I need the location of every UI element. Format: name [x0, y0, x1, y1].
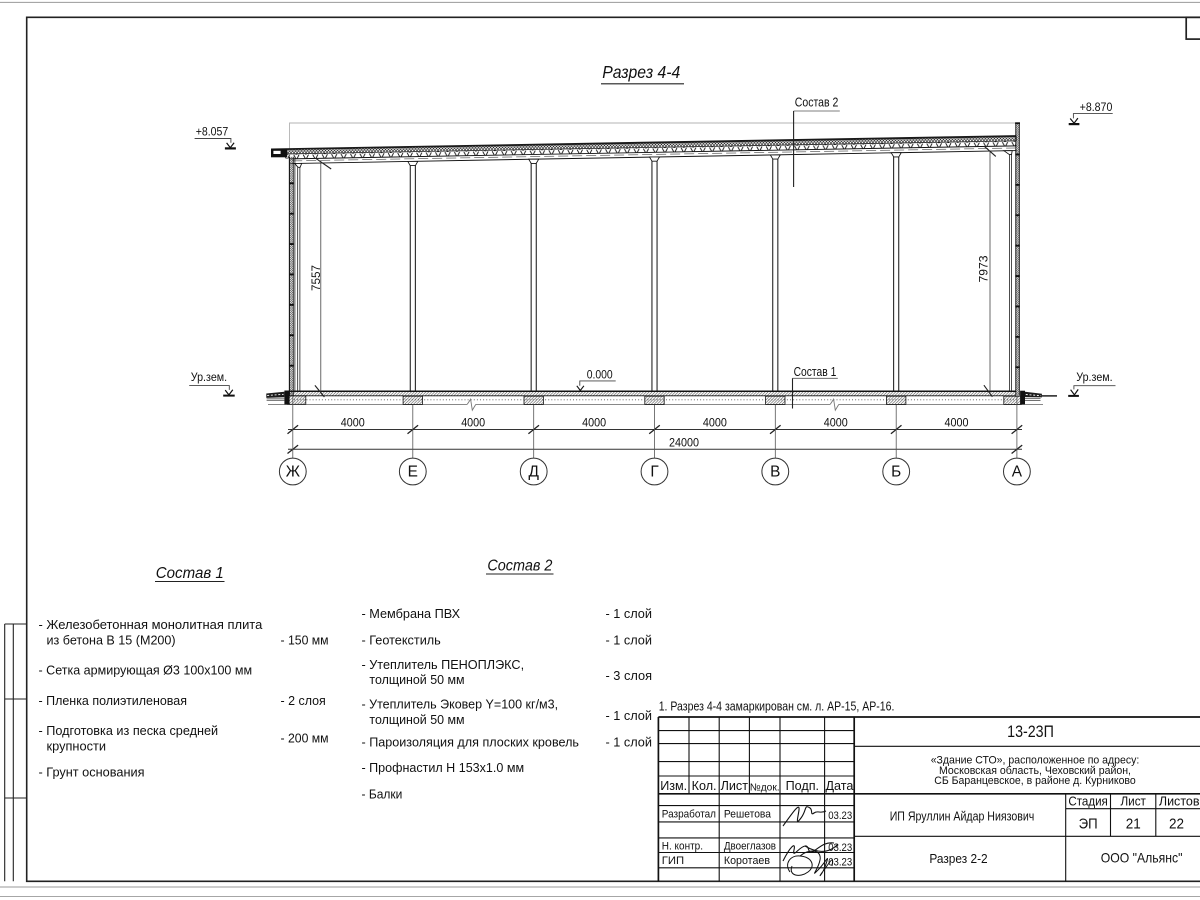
svg-text:Лист: Лист	[721, 779, 749, 793]
svg-text:- Мембрана ПВХ: - Мембрана ПВХ	[362, 606, 461, 621]
svg-text:Коротаев: Коротаев	[724, 855, 770, 867]
svg-text:4000: 4000	[945, 416, 969, 430]
svg-text:- 150 мм: - 150 мм	[281, 632, 329, 647]
svg-text:В: В	[770, 464, 780, 481]
svg-text:из бетона В 15 (М200): из бетона В 15 (М200)	[47, 632, 176, 647]
svg-text:Состав 2: Состав 2	[795, 95, 839, 110]
svg-text:03.23: 03.23	[828, 856, 852, 868]
svg-text:Разработал: Разработал	[662, 808, 716, 820]
svg-text:- 1 слой: - 1 слой	[606, 708, 653, 723]
svg-text:Двоеглазов: Двоеглазов	[724, 841, 776, 853]
svg-text:- Утеплитель Эковер Y=100 кг/м: - Утеплитель Эковер Y=100 кг/м3,	[362, 697, 559, 712]
svg-text:Разрез 2-2: Разрез 2-2	[929, 852, 987, 866]
svg-text:03.23: 03.23	[828, 810, 852, 822]
svg-text:- 1 слой: - 1 слой	[606, 735, 653, 750]
svg-text:Дата: Дата	[825, 779, 853, 793]
svg-text:ЭП: ЭП	[1079, 817, 1098, 833]
svg-text:- Утеплитель ПЕНОПЛЭКС,: - Утеплитель ПЕНОПЛЭКС,	[362, 657, 525, 672]
svg-text:21: 21	[1126, 817, 1141, 833]
svg-text:Ур.зем.: Ур.зем.	[1076, 372, 1112, 384]
svg-text:Н. контр.: Н. контр.	[662, 841, 703, 853]
svg-text:Е: Е	[408, 464, 418, 481]
svg-text:- Балки: - Балки	[362, 787, 403, 802]
svg-text:- 3 слоя: - 3 слоя	[606, 668, 653, 683]
svg-text:Лист: Лист	[1120, 794, 1146, 808]
svg-text:4000: 4000	[341, 416, 365, 430]
svg-text:Состав 1: Состав 1	[156, 565, 224, 582]
svg-text:Разрез 4-4: Разрез 4-4	[602, 62, 680, 82]
svg-text:Кол.: Кол.	[692, 779, 717, 793]
svg-text:- Подготовка из песка средней: - Подготовка из песка средней	[39, 723, 219, 738]
svg-text:Состав 1: Состав 1	[794, 364, 837, 379]
svg-text:- Пароизоляция для плоских кро: - Пароизоляция для плоских кровель	[362, 735, 580, 750]
svg-text:крупности: крупности	[47, 738, 107, 753]
svg-text:Листов: Листов	[1159, 794, 1200, 808]
svg-text:13-23П: 13-23П	[1007, 723, 1054, 741]
svg-text:7973: 7973	[976, 255, 990, 282]
svg-text:- Геотекстиль: - Геотекстиль	[362, 632, 441, 647]
svg-text:+8.870: +8.870	[1080, 102, 1113, 114]
svg-text:+8.057: +8.057	[196, 127, 229, 139]
svg-text:толщиной 50 мм: толщиной 50 мм	[369, 712, 464, 727]
svg-text:толщиной 50 мм: толщиной 50 мм	[369, 672, 464, 687]
svg-text:Стадия: Стадия	[1068, 794, 1108, 808]
svg-text:Г: Г	[650, 464, 659, 481]
svg-text:Б: Б	[891, 464, 901, 481]
svg-text:- Пленка полиэтиленовая: - Пленка полиэтиленовая	[39, 693, 188, 708]
svg-text:- Железобетонная монолитная п: - Железобетонная монолитная плита	[39, 617, 263, 632]
svg-text:ИП Яруллин Айдар Ниязович: ИП Яруллин Айдар Ниязович	[890, 809, 1035, 823]
svg-text:4000: 4000	[703, 416, 727, 430]
svg-text:- 2 слоя: - 2 слоя	[281, 693, 326, 708]
svg-text:ООО "Альянс": ООО "Альянс"	[1101, 851, 1183, 866]
svg-text:- Профнастил Н 153х1.0 мм: - Профнастил Н 153х1.0 мм	[362, 760, 525, 775]
svg-text:А: А	[1012, 464, 1023, 481]
svg-text:Подп.: Подп.	[786, 779, 819, 793]
svg-text:Изм.: Изм.	[660, 779, 687, 793]
svg-text:Ж: Ж	[286, 464, 300, 481]
svg-text:№док.: №док.	[750, 783, 780, 794]
svg-text:ГИП: ГИП	[662, 855, 684, 867]
svg-text:- 200 мм: - 200 мм	[281, 731, 329, 746]
svg-text:- Грунт основания: - Грунт основания	[39, 765, 145, 780]
svg-text:- 1 слой: - 1 слой	[606, 606, 653, 621]
svg-text:4000: 4000	[582, 416, 606, 430]
svg-text:7557: 7557	[309, 265, 323, 291]
svg-text:- 1 слой: - 1 слой	[606, 632, 653, 647]
svg-text:Д: Д	[528, 464, 539, 481]
svg-text:4000: 4000	[824, 416, 848, 430]
svg-text:СБ Баранцевское, в районе д. К: СБ Баранцевское, в районе д. Курниково	[934, 775, 1136, 787]
svg-text:0.000: 0.000	[587, 369, 613, 381]
svg-text:Ур.зем.: Ур.зем.	[191, 372, 227, 384]
svg-text:1. Разрез 4-4 замаркирован см.: 1. Разрез 4-4 замаркирован см. л. АР-15,…	[659, 699, 895, 714]
svg-text:Решетова: Решетова	[724, 808, 772, 820]
svg-text:22: 22	[1169, 817, 1184, 833]
svg-text:- Сетка армирующая Ø3 100х100: - Сетка армирующая Ø3 100х100 мм	[39, 662, 253, 677]
svg-text:03.23: 03.23	[828, 842, 852, 854]
svg-text:24000: 24000	[669, 436, 699, 450]
svg-text:4000: 4000	[461, 416, 485, 430]
svg-text:Состав 2: Состав 2	[487, 558, 552, 575]
